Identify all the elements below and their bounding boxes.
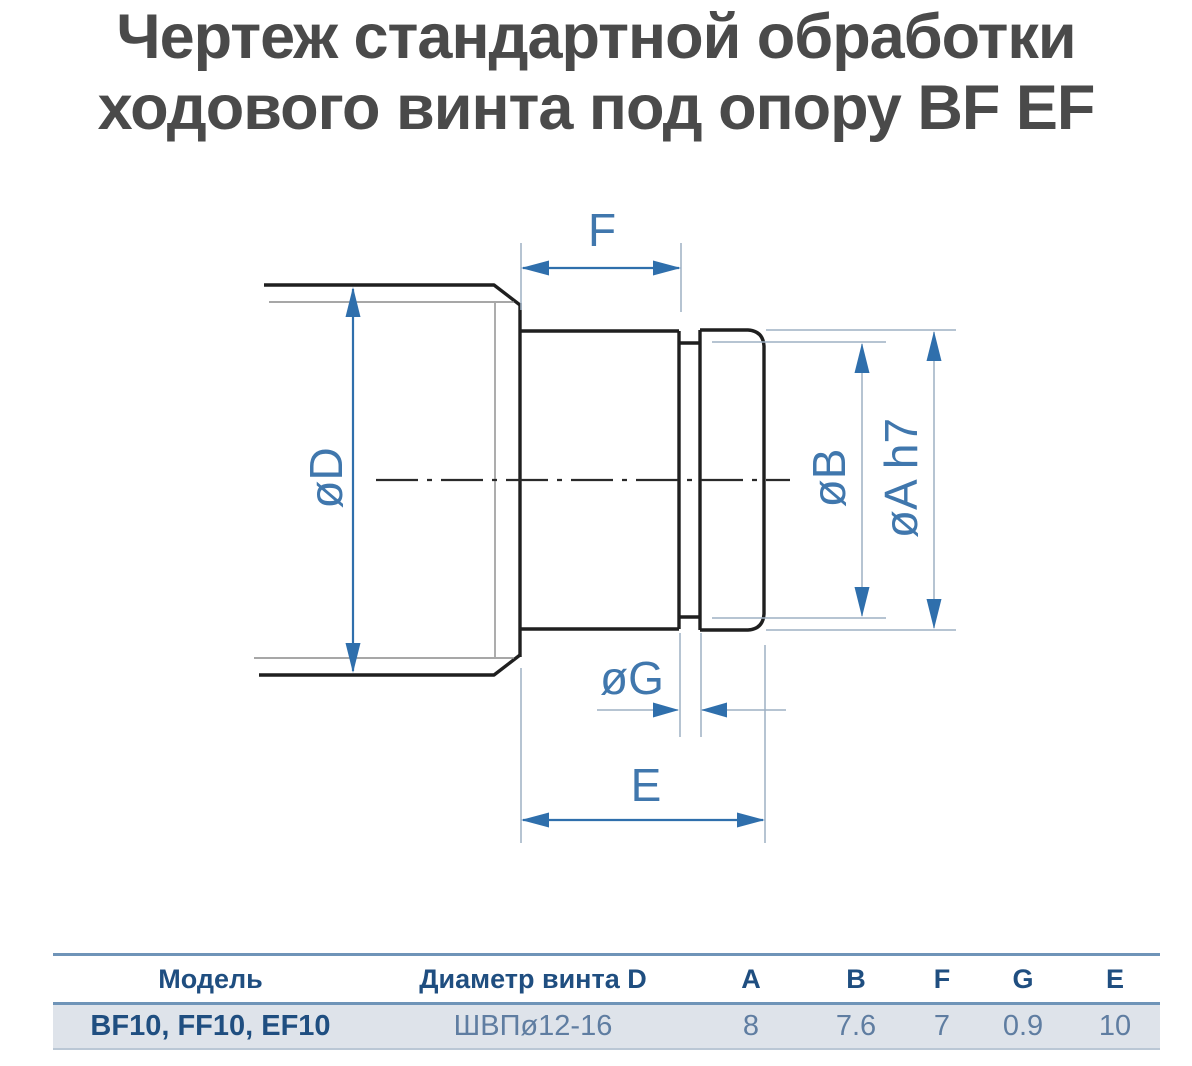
dim-a-label: øA h7: [875, 418, 927, 538]
dim-g-arrow-left: [653, 703, 679, 718]
col-header-e: E: [1070, 964, 1160, 995]
spec-table: Модель Диаметр винта D A B F G E BF10, F…: [53, 953, 1160, 1050]
table-header-row: Модель Диаметр винта D A B F G E: [53, 956, 1160, 1002]
cell-g: 0.9: [976, 1010, 1070, 1043]
cell-b: 7.6: [804, 1010, 908, 1043]
dim-b-arrow-bottom: [855, 587, 870, 617]
col-header-g: G: [976, 964, 1070, 995]
dim-a-arrow-bottom: [927, 599, 942, 629]
dimension-labels: F øD øB øA h7 øG E: [300, 204, 927, 811]
table-row: BF10, FF10, EF10 ШВПø12-16 8 7.6 7 0.9 1…: [53, 1005, 1160, 1050]
dim-d-label: øD: [300, 447, 352, 508]
dim-e-arrow-right: [737, 813, 765, 828]
dim-f-arrow-left: [521, 261, 549, 276]
lead-screw-end-drawing: F øD øB øA h7 øG E: [0, 0, 1192, 1066]
dim-b-label: øB: [803, 449, 855, 508]
dim-e-label: E: [631, 759, 662, 811]
cell-f: 7: [908, 1010, 976, 1043]
col-header-model: Модель: [53, 964, 368, 995]
dimension-arrowheads: [346, 261, 942, 828]
dim-g-label: øG: [600, 652, 664, 704]
dim-a-arrow-top: [927, 331, 942, 361]
cell-e: 10: [1070, 1010, 1160, 1043]
cell-a: 8: [698, 1010, 804, 1043]
dim-b-arrow-top: [855, 343, 870, 373]
dim-e-arrow-left: [521, 813, 549, 828]
col-header-screw-diameter: Диаметр винта D: [368, 964, 698, 995]
dim-f-arrow-right: [653, 261, 681, 276]
col-header-a: A: [698, 964, 804, 995]
dim-a-ext-lines: [766, 330, 956, 630]
cell-model: BF10, FF10, EF10: [53, 1010, 368, 1043]
cell-screw-diameter: ШВПø12-16: [368, 1010, 698, 1043]
dim-g-arrow-right: [701, 703, 727, 718]
col-header-b: B: [804, 964, 908, 995]
col-header-f: F: [908, 964, 976, 995]
extension-lines: [521, 243, 956, 843]
dim-f-label: F: [588, 204, 616, 256]
